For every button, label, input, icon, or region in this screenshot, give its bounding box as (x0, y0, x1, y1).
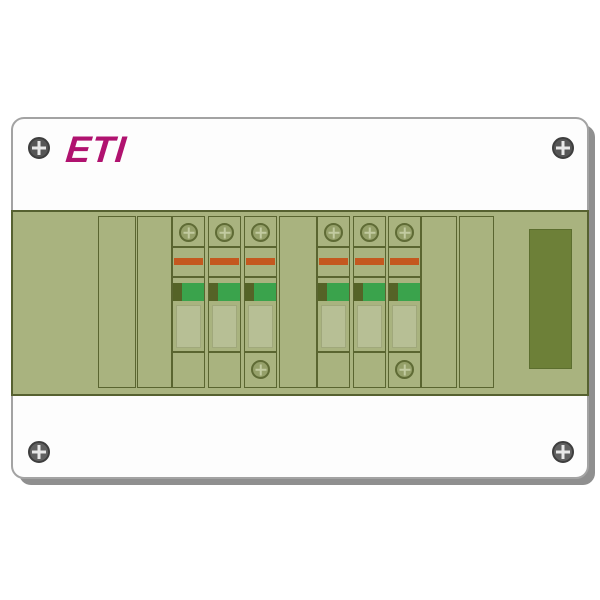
pole-divider (173, 351, 204, 353)
pole-divider (318, 246, 349, 248)
pole-divider (245, 351, 276, 353)
side-slot (529, 229, 572, 369)
pole-divider (173, 276, 204, 278)
fuse-handle-block (245, 283, 254, 301)
fuse-handle-grip (363, 283, 385, 301)
terminal-screw-icon (360, 223, 379, 242)
label-window (321, 305, 346, 348)
fuse-pole (244, 216, 277, 388)
fuse-pole (172, 216, 205, 388)
label-window (357, 305, 382, 348)
fuse-handle-grip (398, 283, 420, 301)
terminal-screw-icon (179, 223, 198, 242)
fuse-handle-grip (218, 283, 240, 301)
fuse-handle (245, 283, 276, 301)
terminal-screw-icon (395, 223, 414, 242)
fuse-handle-block (173, 283, 182, 301)
fuse-pole (353, 216, 386, 388)
pole-divider (389, 276, 420, 278)
fuse-pole (388, 216, 421, 388)
fuse-handle (173, 283, 204, 301)
label-window (248, 305, 273, 348)
blank-module (421, 216, 457, 388)
blank-module (459, 216, 494, 388)
pole-divider (245, 246, 276, 248)
pole-divider (318, 276, 349, 278)
fuse-handle (209, 283, 240, 301)
pole-divider (318, 351, 349, 353)
fuse-stripe (319, 258, 348, 265)
corner-screw-bottom-left-icon (28, 441, 50, 463)
pole-divider (354, 276, 385, 278)
fuse-stripe (390, 258, 419, 265)
blank-module (279, 216, 317, 388)
fuse-pole (317, 216, 350, 388)
pole-divider (354, 351, 385, 353)
pole-divider (389, 351, 420, 353)
pole-divider (245, 276, 276, 278)
fuse-handle-block (389, 283, 398, 301)
fuse-pole (208, 216, 241, 388)
pole-divider (389, 246, 420, 248)
fuse-handle-grip (327, 283, 349, 301)
label-window (212, 305, 237, 348)
blank-module (137, 216, 172, 388)
fuse-handle-block (318, 283, 327, 301)
terminal-screw-icon (324, 223, 343, 242)
fuse-handle-block (354, 283, 363, 301)
corner-screw-top-right-icon (552, 137, 574, 159)
din-panel (11, 210, 589, 396)
brand-logo: ETI (64, 129, 129, 171)
fuse-handle-grip (182, 283, 204, 301)
fuse-handle-block (209, 283, 218, 301)
fuse-stripe (246, 258, 275, 265)
product-image: ETI (0, 0, 600, 600)
fuse-handle (318, 283, 349, 301)
corner-screw-top-left-icon (28, 137, 50, 159)
enclosure: ETI (11, 117, 589, 479)
fuse-stripe (355, 258, 384, 265)
pole-divider (173, 246, 204, 248)
fuse-handle (354, 283, 385, 301)
fuse-stripe (174, 258, 203, 265)
pole-divider (209, 276, 240, 278)
pole-divider (354, 246, 385, 248)
bottom-screw-icon (395, 360, 414, 379)
pole-divider (209, 351, 240, 353)
bottom-screw-icon (251, 360, 270, 379)
pole-divider (209, 246, 240, 248)
terminal-screw-icon (251, 223, 270, 242)
fuse-stripe (210, 258, 239, 265)
terminal-screw-icon (215, 223, 234, 242)
corner-screw-bottom-right-icon (552, 441, 574, 463)
fuse-handle-grip (254, 283, 276, 301)
fuse-handle (389, 283, 420, 301)
blank-module (98, 216, 136, 388)
label-window (392, 305, 417, 348)
label-window (176, 305, 201, 348)
